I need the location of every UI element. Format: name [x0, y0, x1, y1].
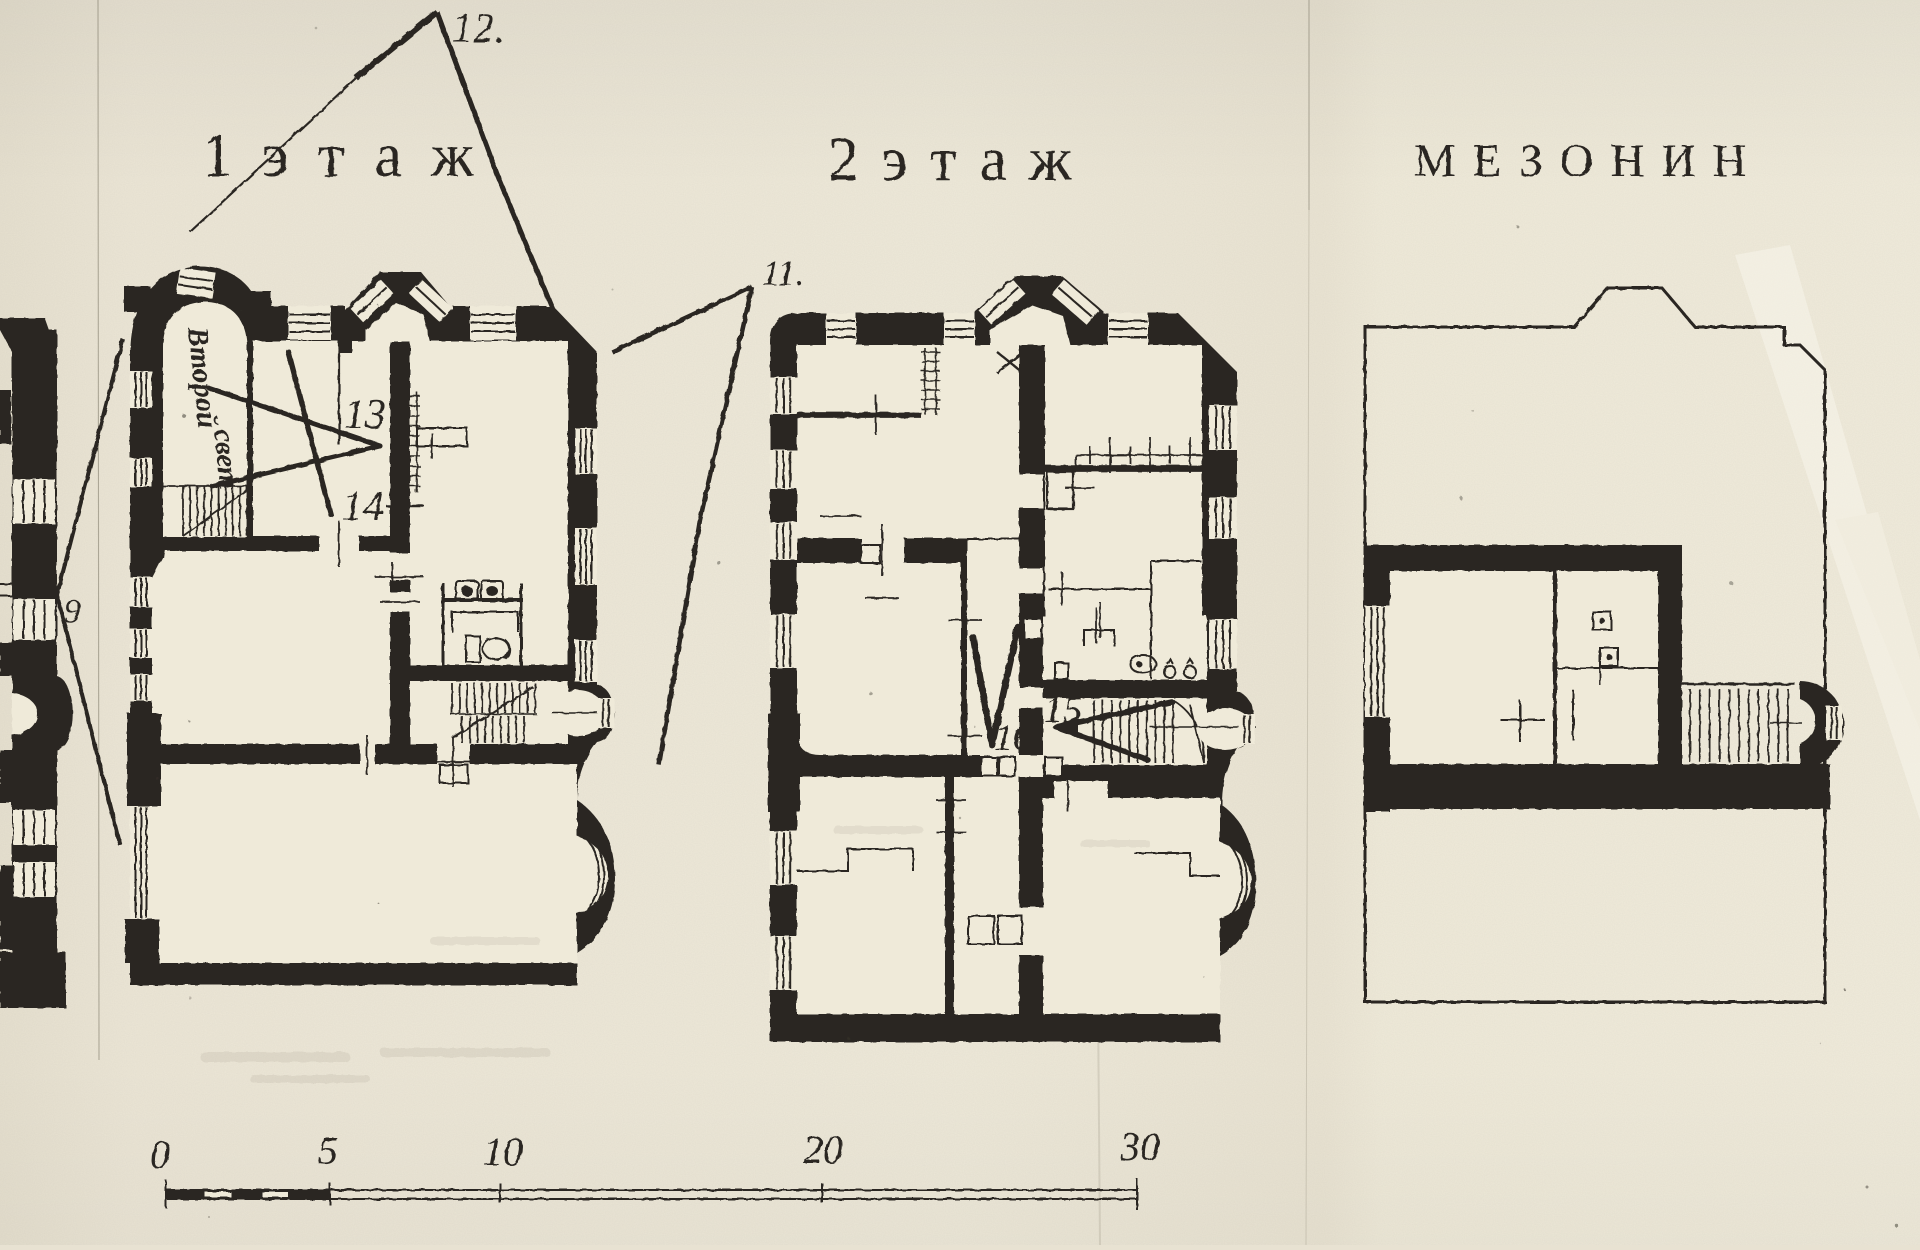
svg-text:13: 13 [344, 392, 386, 438]
svg-text:15: 15 [1044, 689, 1082, 731]
svg-text:12.: 12. [452, 6, 505, 52]
svg-text:20: 20 [803, 1127, 843, 1172]
svg-text:2этаж: 2этаж [828, 126, 1094, 194]
svg-text:11.: 11. [762, 253, 804, 293]
svg-text:14: 14 [342, 484, 384, 530]
svg-text:30: 30 [1119, 1124, 1160, 1169]
svg-text:0: 0 [150, 1132, 170, 1177]
svg-text:10: 10 [483, 1129, 523, 1174]
svg-text:МЕЗОНИН: МЕЗОНИН [1414, 135, 1763, 187]
svg-text:5: 5 [318, 1128, 338, 1173]
svg-text:16: 16 [994, 717, 1032, 759]
svg-text:9: 9 [64, 593, 81, 630]
